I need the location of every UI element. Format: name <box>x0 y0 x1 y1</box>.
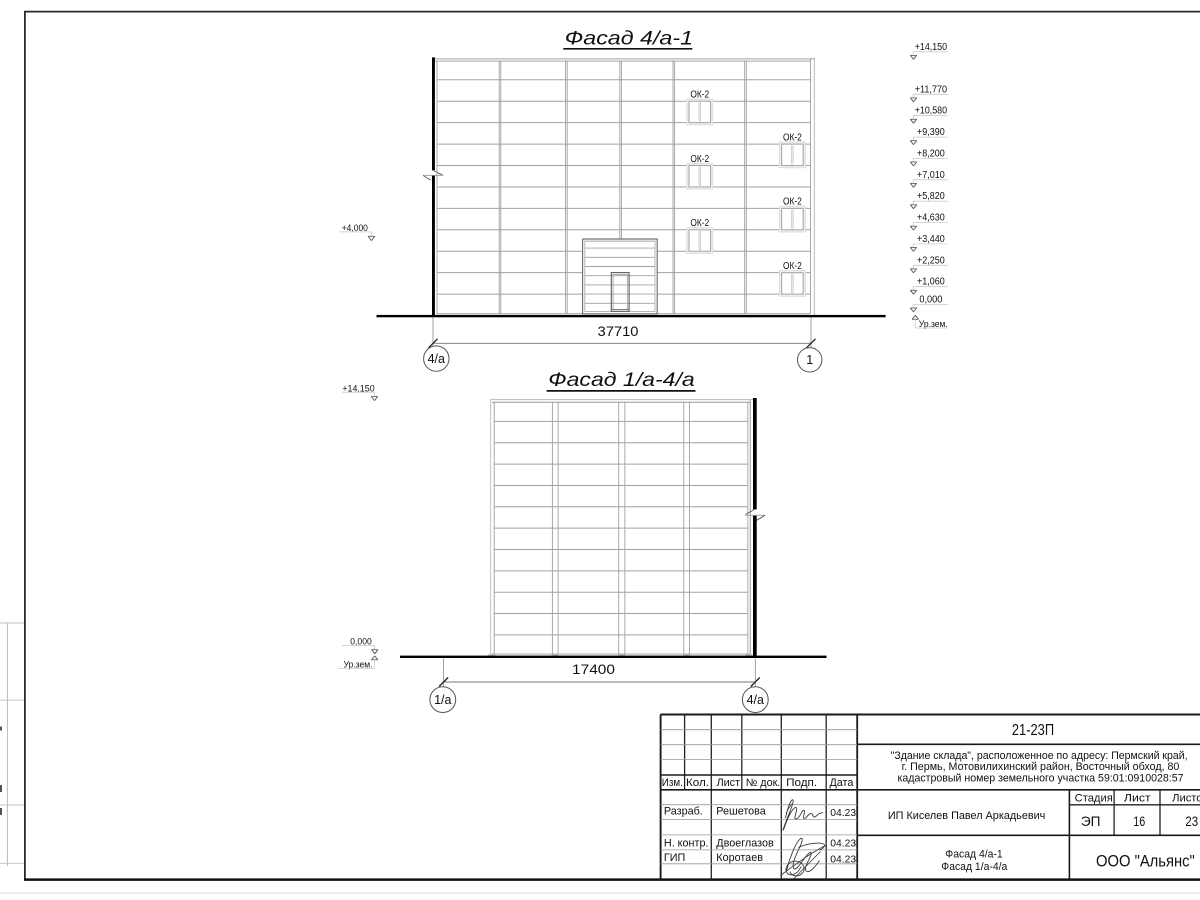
svg-text:23: 23 <box>1185 814 1198 829</box>
svg-text:Фасад 4/а-1: Фасад 4/а-1 <box>565 28 693 50</box>
svg-text:0,000: 0,000 <box>919 294 943 305</box>
svg-text:Н. контр.: Н. контр. <box>664 837 709 849</box>
svg-text:+4,630: +4,630 <box>917 213 945 224</box>
svg-text:Дата: Дата <box>829 777 853 789</box>
svg-text:ИП Киселев Павел Аркадьевич: ИП Киселев Павел Аркадьевич <box>888 810 1046 822</box>
svg-text:1/а: 1/а <box>434 693 451 707</box>
svg-text:Коротаев: Коротаев <box>716 852 763 864</box>
svg-text:21-23П: 21-23П <box>1012 722 1054 739</box>
svg-text:Изм.: Изм. <box>662 777 683 789</box>
svg-text:Подп.: Подп. <box>786 777 817 789</box>
svg-text:Ур.зем.: Ур.зем. <box>919 318 948 329</box>
svg-text:+4,000: +4,000 <box>342 222 368 233</box>
svg-text:Кол.: Кол. <box>686 777 709 789</box>
svg-text:+8,200: +8,200 <box>917 148 945 159</box>
svg-text:17400: 17400 <box>572 662 615 677</box>
svg-text:Разраб.: Разраб. <box>664 805 703 817</box>
svg-text:Листов: Листов <box>1172 792 1200 804</box>
svg-text:кадастровый номер земельного у: кадастровый номер земельного участка 59:… <box>898 773 1184 785</box>
svg-text:04.23: 04.23 <box>830 808 856 819</box>
svg-text:37710: 37710 <box>598 324 639 339</box>
svg-text:Лист: Лист <box>717 777 741 789</box>
svg-text:Двоеглазов: Двоеглазов <box>716 837 774 849</box>
svg-text:ЭП: ЭП <box>1081 814 1101 829</box>
svg-text:Лист: Лист <box>1124 792 1151 804</box>
svg-text:+11,770: +11,770 <box>915 84 948 95</box>
svg-text:1: 1 <box>806 353 813 367</box>
svg-text:"Здание склада", расположенное: "Здание склада", расположенное по адресу… <box>891 750 1188 762</box>
svg-text:04.23: 04.23 <box>830 838 856 849</box>
svg-text:0,000: 0,000 <box>350 635 372 646</box>
svg-text:Фасад 4/а-1: Фасад 4/а-1 <box>945 848 1002 860</box>
svg-text:+3,440: +3,440 <box>917 234 945 245</box>
svg-text:+1,060: +1,060 <box>917 277 945 288</box>
svg-text:+2,250: +2,250 <box>917 255 945 266</box>
svg-text:+9,390: +9,390 <box>917 127 945 138</box>
svg-text:4/а: 4/а <box>747 693 764 707</box>
svg-text:ООО "Альянс": ООО "Альянс" <box>1096 851 1195 870</box>
svg-text:+7,010: +7,010 <box>917 170 945 181</box>
svg-text:+14,150: +14,150 <box>915 42 948 53</box>
svg-text:Фасад 1/а-4/а: Фасад 1/а-4/а <box>548 369 695 391</box>
svg-text:04.23: 04.23 <box>830 854 856 865</box>
svg-text:ГИП: ГИП <box>664 852 685 864</box>
svg-text:Решетова: Решетова <box>716 805 766 817</box>
svg-text:16: 16 <box>1133 814 1145 829</box>
svg-text:+10,580: +10,580 <box>915 106 948 117</box>
svg-text:+5,820: +5,820 <box>917 191 945 202</box>
svg-text:г. Пермь, Мотовилихинский райо: г. Пермь, Мотовилихинский район, Восточн… <box>902 761 1180 773</box>
svg-text:4/а: 4/а <box>428 352 445 366</box>
svg-text:№ док.: № док. <box>746 777 781 789</box>
svg-text:Ур.зем.: Ур.зем. <box>344 658 373 669</box>
svg-text:Фасад 1/а-4/а: Фасад 1/а-4/а <box>941 861 1008 873</box>
svg-text:+14,150: +14,150 <box>342 382 374 393</box>
svg-text:Стадия: Стадия <box>1075 792 1113 804</box>
